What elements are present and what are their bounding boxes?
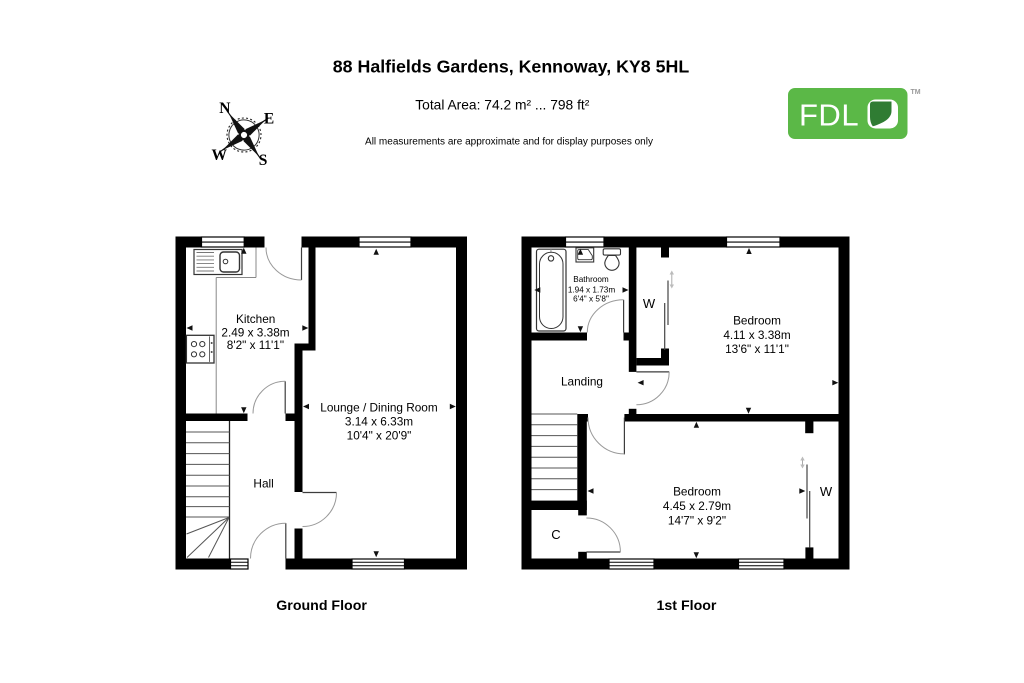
svg-text:N: N [219,100,230,117]
svg-text:E: E [264,110,274,127]
svg-text:4.11 x 3.38m: 4.11 x 3.38m [723,328,790,342]
svg-text:S: S [259,152,268,169]
svg-text:W: W [643,296,656,311]
svg-text:13'6" x 11'1": 13'6" x 11'1" [725,342,789,356]
svg-text:6'4" x 5'8": 6'4" x 5'8" [573,294,609,303]
svg-text:Lounge / Dining Room: Lounge / Dining Room [320,400,438,414]
svg-text:W: W [212,147,228,164]
svg-text:W: W [820,484,833,499]
svg-text:1.94 x 1.73m: 1.94 x 1.73m [568,285,616,294]
svg-text:C: C [551,527,560,542]
svg-text:TM: TM [911,89,921,96]
svg-text:Bathroom: Bathroom [573,275,609,284]
svg-text:Hall: Hall [253,476,273,490]
svg-text:Ground Floor: Ground Floor [276,598,367,614]
svg-text:3.14 x 6.33m: 3.14 x 6.33m [345,415,413,429]
svg-text:Total Area: 74.2 m² ... 798 ft: Total Area: 74.2 m² ... 798 ft² [415,98,589,113]
svg-text:Bedroom: Bedroom [673,484,721,498]
svg-text:1st Floor: 1st Floor [657,598,717,614]
svg-text:8'2" x 11'1": 8'2" x 11'1" [227,338,284,352]
svg-text:Landing: Landing [561,375,603,389]
svg-text:Bedroom: Bedroom [733,313,781,327]
svg-text:Kitchen: Kitchen [236,312,275,326]
svg-text:All measurements are approxima: All measurements are approximate and for… [365,136,653,147]
svg-text:FDL: FDL [799,98,859,133]
svg-text:88 Halfields Gardens, Kennoway: 88 Halfields Gardens, Kennoway, KY8 5HL [333,56,690,76]
svg-text:10'4" x 20'9": 10'4" x 20'9" [347,429,412,443]
svg-text:4.45 x 2.79m: 4.45 x 2.79m [663,499,731,513]
svg-text:14'7" x 9'2": 14'7" x 9'2" [668,513,726,527]
